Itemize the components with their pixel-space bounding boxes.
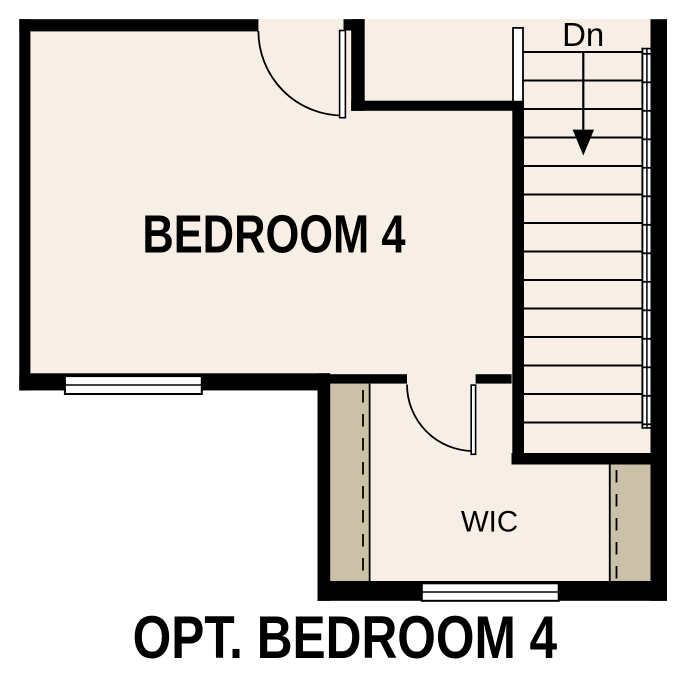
svg-text:WIC: WIC: [461, 506, 518, 539]
svg-text:Dn: Dn: [562, 16, 604, 53]
svg-text:BEDROOM 4: BEDROOM 4: [142, 205, 405, 264]
svg-text:OPT. BEDROOM 4: OPT. BEDROOM 4: [133, 604, 558, 672]
